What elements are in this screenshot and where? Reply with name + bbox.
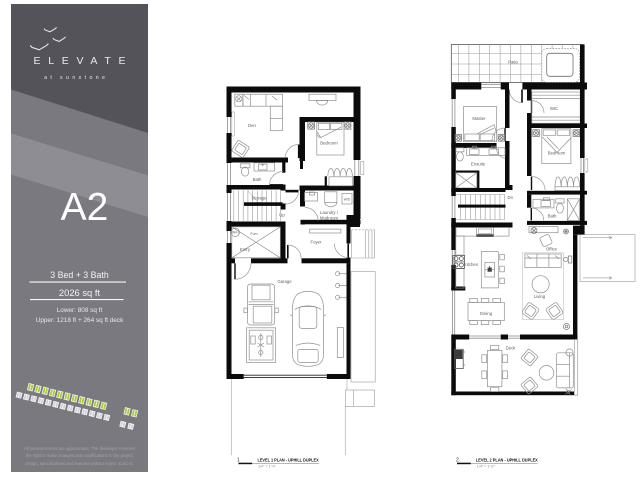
- svg-text:Living: Living: [534, 294, 546, 299]
- svg-text:LEVEL 2 PLAN - UPHILL DUPLEX: LEVEL 2 PLAN - UPHILL DUPLEX: [476, 458, 539, 464]
- svg-text:Mudroom: Mudroom: [320, 216, 339, 221]
- svg-text:Master: Master: [472, 116, 486, 121]
- svg-text:Dining: Dining: [480, 311, 493, 316]
- svg-text:Bath: Bath: [253, 177, 262, 182]
- svg-text:Foyer: Foyer: [311, 240, 323, 245]
- svg-text:Deck: Deck: [506, 346, 517, 351]
- svg-text:W/D: W/D: [344, 197, 351, 201]
- svg-text:LEVEL 1 PLAN - UPHILL DUPLEX: LEVEL 1 PLAN - UPHILL DUPLEX: [258, 458, 320, 464]
- svg-text:Bath: Bath: [548, 214, 557, 219]
- svg-text:W/H: W/H: [232, 230, 239, 234]
- svg-text:Dn: Dn: [508, 195, 514, 200]
- svg-text:Bedroom: Bedroom: [320, 141, 338, 146]
- svg-text:WIC: WIC: [550, 106, 558, 111]
- svg-text:Storage: Storage: [251, 196, 267, 201]
- svg-text:Furn: Furn: [251, 232, 258, 236]
- svg-text:Ensuite: Ensuite: [471, 162, 486, 167]
- svg-text:Office: Office: [546, 247, 558, 252]
- svg-text:Patio: Patio: [508, 60, 518, 65]
- svg-text:Bedroom: Bedroom: [548, 151, 566, 156]
- svg-text:Laundry /: Laundry /: [320, 210, 339, 215]
- svg-text:Kitchen: Kitchen: [464, 262, 479, 267]
- svg-text:1/4" = 1'-0": 1/4" = 1'-0": [258, 465, 277, 469]
- svg-text:1/4" = 1'-0": 1/4" = 1'-0": [477, 465, 496, 469]
- svg-text:Up: Up: [279, 213, 285, 218]
- svg-text:Den: Den: [248, 123, 256, 128]
- svg-text:Garage: Garage: [277, 279, 292, 284]
- svg-text:Entry: Entry: [240, 247, 251, 252]
